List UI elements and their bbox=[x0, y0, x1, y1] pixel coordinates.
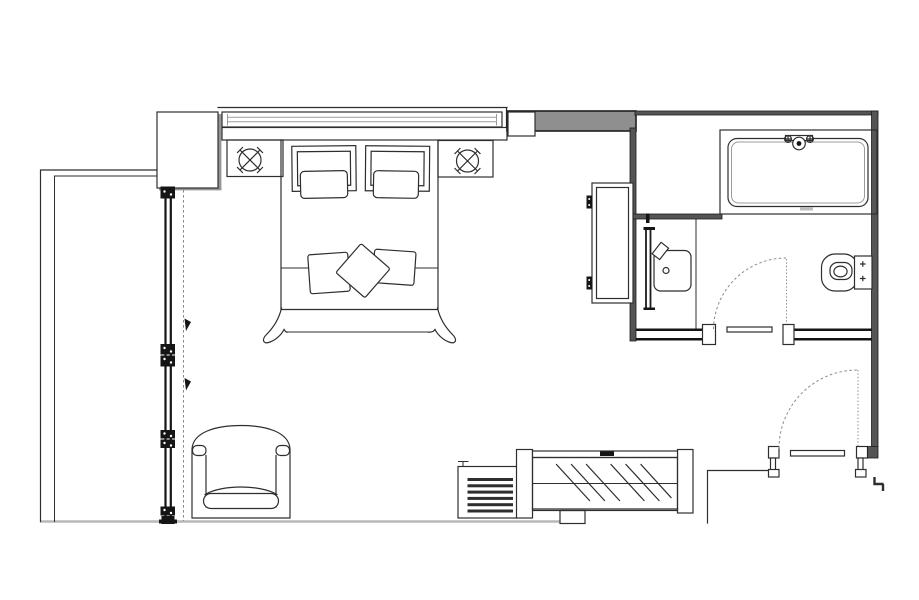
glass-hatch-lines bbox=[557, 465, 672, 501]
tub-faucet-icon bbox=[785, 136, 814, 150]
floor-plan-drawing bbox=[0, 0, 919, 600]
console-plinth-step bbox=[560, 511, 585, 524]
entry-door bbox=[769, 370, 884, 491]
entry-wall-step bbox=[875, 477, 884, 491]
armchair bbox=[192, 426, 290, 519]
floor-plan-page bbox=[0, 0, 919, 600]
wardrobe-cabinet bbox=[157, 112, 222, 190]
bed bbox=[264, 140, 456, 343]
slide-direction-arrow-icon bbox=[185, 378, 192, 391]
mirror-top-tick bbox=[646, 214, 650, 224]
console-minibar bbox=[517, 450, 694, 524]
bedspread-foot bbox=[264, 308, 456, 343]
pillow bbox=[300, 171, 348, 199]
ceiling-light-icon bbox=[455, 149, 480, 174]
headboard-console bbox=[227, 140, 493, 177]
entry-door-swing-arc bbox=[779, 370, 858, 449]
floor-grille bbox=[458, 462, 517, 519]
exterior-wall bbox=[41, 170, 158, 522]
decorative-pillows bbox=[308, 243, 416, 297]
tub-drain-mark bbox=[800, 207, 813, 211]
basin-tap-icon bbox=[652, 242, 668, 259]
bathroom-door bbox=[703, 258, 795, 345]
entry-corridor-wall bbox=[708, 471, 769, 524]
window-wall-mullion bbox=[159, 187, 191, 525]
toilet bbox=[822, 254, 873, 291]
basin-drain bbox=[663, 268, 669, 274]
washbasin-vanity bbox=[644, 214, 692, 311]
entry-door-saddle bbox=[791, 451, 845, 457]
ceiling-light-icon bbox=[238, 148, 263, 173]
seat-cushion bbox=[204, 494, 279, 509]
slide-direction-arrow-icon bbox=[185, 319, 192, 332]
cabinet-hinge-icon bbox=[587, 196, 593, 290]
bathroom-door-swing-arc bbox=[714, 258, 787, 329]
curtain-box-glazing bbox=[218, 108, 507, 141]
mirror-panel bbox=[646, 229, 651, 310]
bathtub bbox=[720, 130, 877, 214]
tall-cabinet bbox=[587, 183, 634, 303]
pillow bbox=[373, 171, 418, 199]
